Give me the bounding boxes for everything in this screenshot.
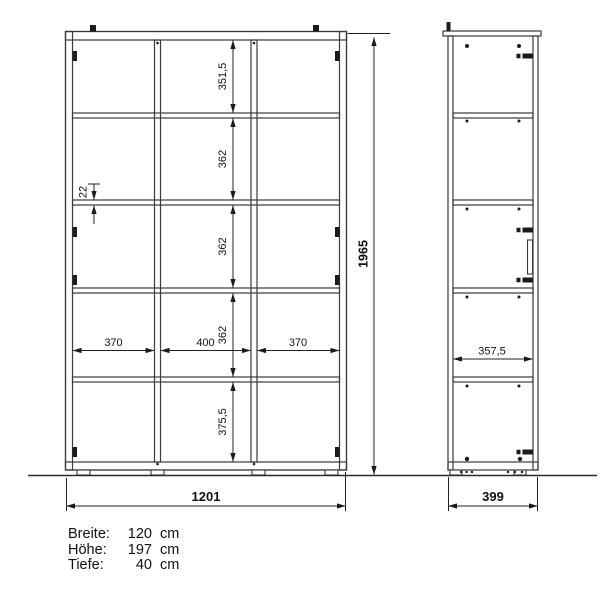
- screw-dot: [253, 463, 256, 466]
- dimension-bay-widths: 370 400 370: [73, 337, 339, 351]
- dim-label-compartment-3: 362: [217, 237, 229, 255]
- front-outer-frame: [66, 32, 347, 471]
- hinge-icon: [73, 447, 78, 457]
- front-shelf-3: [73, 288, 340, 293]
- screw-dot: [514, 471, 516, 473]
- dimension-total-depth: 399: [449, 477, 538, 511]
- dim-label-compartment-1: 351,5: [217, 63, 229, 91]
- dim-label-bay-2: 400: [196, 337, 214, 349]
- wall-bracket-icon: [447, 22, 451, 32]
- front-shelf-1: [73, 113, 340, 118]
- screw-dot: [518, 296, 521, 299]
- screw-dot: [518, 457, 522, 461]
- dimension-interior-depth: 357,5: [454, 346, 533, 360]
- side-shelf-1: [453, 113, 533, 118]
- dimension-shelf-thickness: 22: [78, 184, 101, 224]
- dim-label-interior-depth: 357,5: [478, 346, 506, 358]
- front-left-side-panel: [66, 32, 73, 471]
- side-bottom-panel: [448, 462, 538, 470]
- legend-value: 197: [122, 543, 152, 559]
- side-shelf-3: [453, 288, 533, 293]
- dim-label-compartment-4: 362: [217, 326, 229, 344]
- screw-dot: [460, 471, 462, 473]
- dim-label-total-height: 1965: [357, 240, 371, 268]
- side-front-panel: [533, 36, 538, 470]
- screw-dot: [521, 471, 523, 473]
- screw-dot: [507, 471, 509, 473]
- dim-label-compartment-5: 375,5: [217, 408, 229, 436]
- side-view: [443, 22, 541, 475]
- front-bottom-panel: [66, 462, 347, 470]
- technical-drawing-page: 351,5 362 362 362 375,5 22 370 400 370 1…: [0, 0, 600, 600]
- dimensions-legend: Breite: 120 cm Höhe: 197 cm Tiefe: 40 cm: [68, 527, 179, 574]
- hinge-icon: [73, 51, 78, 61]
- front-foot-4: [325, 470, 338, 475]
- dim-label-bay-3: 370: [289, 337, 307, 349]
- side-shelf-2: [453, 200, 533, 205]
- front-top-panel: [66, 32, 347, 41]
- screw-dot: [518, 385, 521, 388]
- dim-label-total-depth: 399: [482, 489, 504, 504]
- hinge-icon: [335, 51, 340, 61]
- side-top-panel: [443, 31, 541, 36]
- screw-dot: [465, 457, 469, 461]
- dim-label-total-width: 1201: [192, 489, 221, 504]
- legend-label: Breite:: [68, 527, 122, 543]
- screw-dot: [465, 44, 469, 48]
- screw-dot: [466, 208, 469, 211]
- legend-row-height: Höhe: 197 cm: [68, 543, 179, 559]
- front-shelf-2: [73, 200, 340, 205]
- legend-row-width: Breite: 120 cm: [68, 527, 179, 543]
- legend-unit: cm: [160, 543, 179, 559]
- legend-label: Tiefe:: [68, 558, 122, 574]
- screw-dot: [471, 471, 473, 473]
- dimension-total-width: 1201: [67, 472, 346, 511]
- dimension-compartment-heights: 351,5 362 362 362 375,5: [217, 41, 233, 462]
- dim-label-bay-1: 370: [104, 337, 122, 349]
- dim-label-compartment-2: 362: [217, 150, 229, 168]
- legend-unit: cm: [160, 527, 179, 543]
- screw-dot: [466, 296, 469, 299]
- legend-unit: cm: [160, 558, 179, 574]
- dimension-total-height: 1965: [348, 34, 391, 475]
- hinge-icon: [335, 227, 340, 237]
- side-shelf-4: [453, 377, 533, 382]
- legend-value: 120: [122, 527, 152, 543]
- front-foot-2: [151, 470, 164, 475]
- legend-value: 40: [122, 558, 152, 574]
- hinge-icon: [73, 275, 78, 285]
- front-right-side-panel: [340, 32, 347, 471]
- front-divider-2: [251, 40, 257, 462]
- hinge-icon: [335, 447, 340, 457]
- screw-dot: [518, 208, 521, 211]
- legend-row-depth: Tiefe: 40 cm: [68, 558, 179, 574]
- hinge-icon: [517, 54, 534, 59]
- screw-dot: [517, 44, 521, 48]
- screw-dot: [518, 120, 521, 123]
- hinge-icon: [517, 450, 534, 455]
- hinge-icon: [335, 275, 340, 285]
- dim-label-shelf-thickness: 22: [78, 186, 90, 198]
- screw-dot: [156, 463, 159, 466]
- wall-bracket-icon: [90, 25, 96, 32]
- side-back-panel: [448, 36, 453, 470]
- hinge-icon: [73, 227, 78, 237]
- legend-label: Höhe:: [68, 543, 122, 559]
- front-view: [66, 25, 347, 475]
- front-divider-1: [155, 40, 161, 462]
- screw-dot: [253, 42, 256, 45]
- screw-dot: [466, 120, 469, 123]
- front-foot-1: [77, 470, 90, 475]
- screw-dot: [156, 42, 159, 45]
- screw-dot: [466, 385, 469, 388]
- door-handle: [528, 240, 533, 274]
- front-shelf-4: [73, 377, 340, 382]
- front-foot-3: [252, 470, 265, 475]
- hinge-icon: [517, 228, 534, 233]
- drawing-svg: 351,5 362 362 362 375,5 22 370 400 370 1…: [0, 0, 600, 600]
- hinge-icon: [517, 278, 534, 283]
- screw-dot: [465, 471, 467, 473]
- wall-bracket-icon: [313, 25, 319, 32]
